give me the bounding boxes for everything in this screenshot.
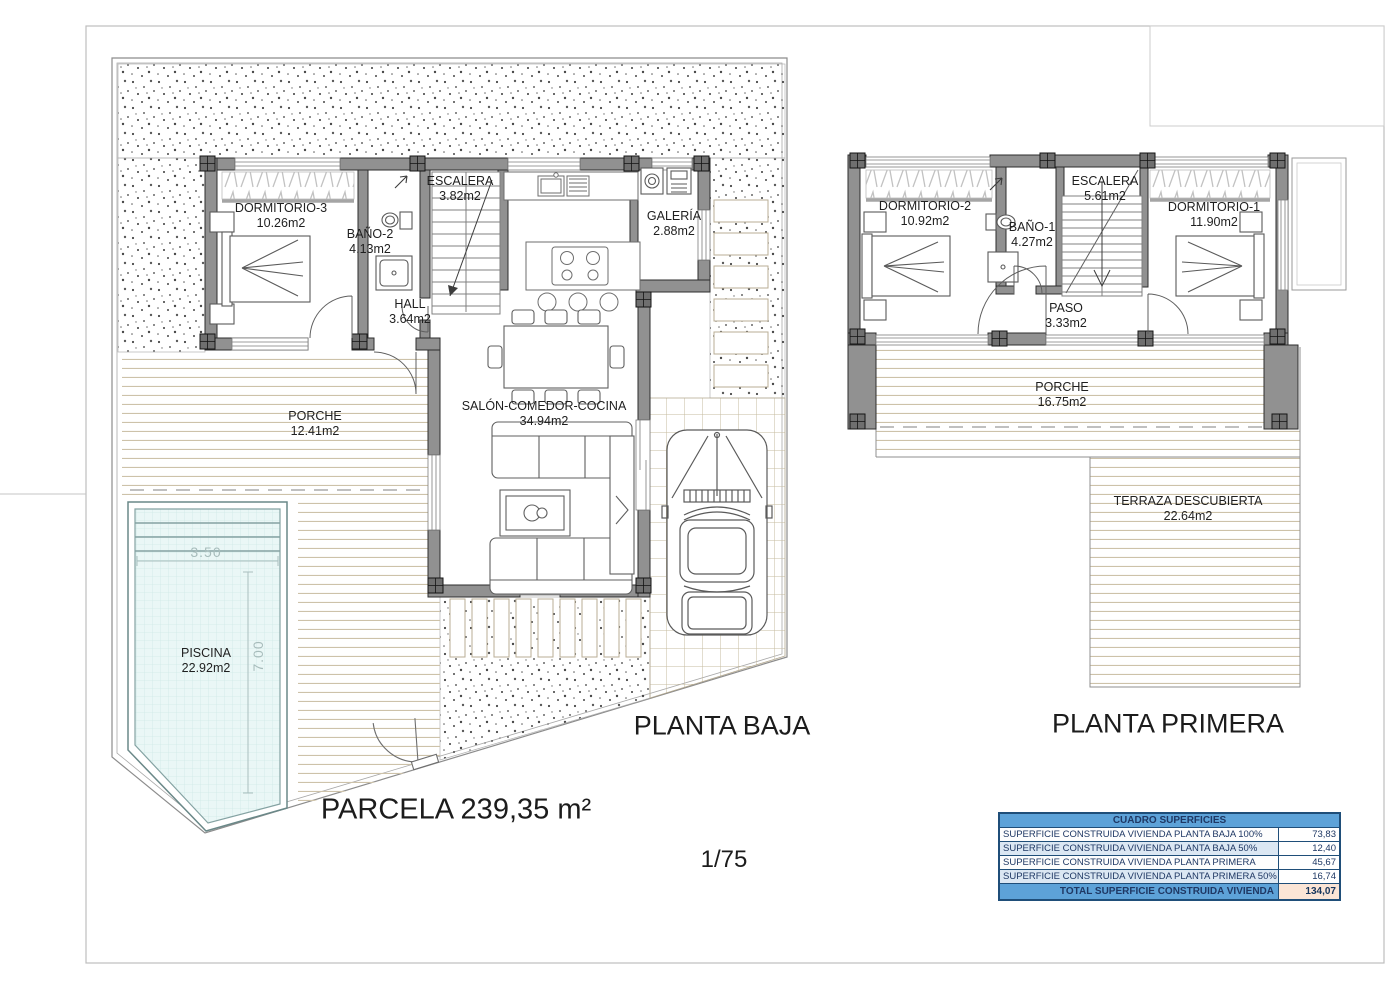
- room-area: 3.64m2: [389, 312, 431, 327]
- row-label: SUPERFICIE CONSTRUIDA VIVIENDA PLANTA PR…: [1000, 856, 1278, 869]
- room-label-salon-comedor-cocina: SALÓN-COMEDOR-COCINA 34.94m2: [462, 399, 627, 430]
- room-area: 4.27m2: [1009, 235, 1056, 250]
- row-label: SUPERFICIE CONSTRUIDA VIVIENDA PLANTA BA…: [1000, 842, 1278, 855]
- row-label: SUPERFICIE CONSTRUIDA VIVIENDA PLANTA BA…: [1000, 828, 1278, 841]
- room-label-bano-1: BAÑO-1 4.27m2: [1009, 220, 1056, 251]
- table-row: SUPERFICIE CONSTRUIDA VIVIENDA PLANTA BA…: [1000, 842, 1339, 856]
- room-area: 22.92m2: [181, 661, 231, 676]
- room-label-dormitorio-3: DORMITORIO-3 10.26m2: [235, 201, 327, 232]
- row-label: SUPERFICIE CONSTRUIDA VIVIENDA PLANTA PR…: [1000, 870, 1278, 883]
- room-label-escalera-primera: ESCALERA 5.61m2: [1072, 174, 1139, 205]
- balcony-ledge: [1292, 158, 1346, 290]
- table-total-row: TOTAL SUPERFICIE CONSTRUIDA VIVIENDA 134…: [1000, 884, 1339, 899]
- room-label-hall: HALL 3.64m2: [389, 297, 431, 328]
- total-value: 134,07: [1278, 884, 1339, 899]
- room-name: HALL: [389, 297, 431, 312]
- title-planta-baja: PLANTA BAJA: [634, 711, 811, 742]
- room-label-paso: PASO 3.33m2: [1045, 301, 1087, 332]
- room-label-porche-baja: PORCHE 12.41m2: [288, 409, 341, 440]
- room-name: ESCALERA: [427, 174, 494, 189]
- surfaces-table-header: CUADRO SUPERFICIES: [1000, 814, 1339, 828]
- room-area: 3.33m2: [1045, 316, 1087, 331]
- room-name: GALERÍA: [647, 209, 701, 224]
- row-value: 12,40: [1278, 842, 1339, 855]
- room-area: 16.75m2: [1035, 395, 1088, 410]
- room-area: 3.82m2: [427, 189, 494, 204]
- room-label-terraza-descubierta: TERRAZA DESCUBIERTA 22.64m2: [1114, 494, 1263, 525]
- row-value: 45,67: [1278, 856, 1339, 869]
- wardrobe-dormitorio-3: [222, 172, 354, 201]
- room-area: 10.92m2: [879, 214, 971, 229]
- plan-sheet: DORMITORIO-3 10.26m2 BAÑO-2 4.13m2 ESCAL…: [0, 0, 1400, 991]
- pool-width-dimension: 3.50: [190, 544, 221, 560]
- room-area: 4.13m2: [347, 242, 394, 257]
- scale-label: 1/75: [701, 846, 748, 874]
- car-top-view: [662, 430, 772, 635]
- surfaces-table: CUADRO SUPERFICIES SUPERFICIE CONSTRUIDA…: [998, 812, 1341, 901]
- table-row: SUPERFICIE CONSTRUIDA VIVIENDA PLANTA BA…: [1000, 828, 1339, 842]
- room-name: BAÑO-1: [1009, 220, 1056, 235]
- living-room-furniture: [490, 422, 634, 594]
- room-label-escalera-baja: ESCALERA 3.82m2: [427, 174, 494, 205]
- room-label-galeria: GALERÍA 2.88m2: [647, 209, 701, 240]
- room-name: BAÑO-2: [347, 227, 394, 242]
- room-name: PORCHE: [288, 409, 341, 424]
- row-value: 16,74: [1278, 870, 1339, 883]
- room-label-dormitorio-2: DORMITORIO-2 10.92m2: [879, 199, 971, 230]
- room-name: ESCALERA: [1072, 174, 1139, 189]
- room-area: 34.94m2: [462, 414, 627, 429]
- room-label-porche-primera: PORCHE 16.75m2: [1035, 380, 1088, 411]
- room-name: TERRAZA DESCUBIERTA: [1114, 494, 1263, 509]
- room-name: PISCINA: [181, 646, 231, 661]
- room-name: PASO: [1045, 301, 1087, 316]
- row-value: 73,83: [1278, 828, 1339, 841]
- parcel-area-label: PARCELA 239,35 m²: [321, 794, 591, 827]
- room-area: 22.64m2: [1114, 509, 1263, 524]
- room-label-piscina: PISCINA 22.92m2: [181, 646, 231, 677]
- room-area: 10.26m2: [235, 216, 327, 231]
- room-name: SALÓN-COMEDOR-COCINA: [462, 399, 627, 414]
- room-name: DORMITORIO-3: [235, 201, 327, 216]
- room-label-bano-2: BAÑO-2 4.13m2: [347, 227, 394, 258]
- room-name: DORMITORIO-1: [1168, 200, 1260, 215]
- room-label-dormitorio-1: DORMITORIO-1 11.90m2: [1168, 200, 1260, 231]
- room-area: 5.61m2: [1072, 189, 1139, 204]
- room-name: DORMITORIO-2: [879, 199, 971, 214]
- room-area: 12.41m2: [288, 424, 341, 439]
- galeria-appliances: [641, 168, 691, 194]
- table-row: SUPERFICIE CONSTRUIDA VIVIENDA PLANTA PR…: [1000, 870, 1339, 884]
- room-area: 11.90m2: [1168, 215, 1260, 230]
- dining-table: [488, 310, 624, 404]
- pool-length-dimension: 7.00: [250, 640, 266, 671]
- total-label: TOTAL SUPERFICIE CONSTRUIDA VIVIENDA: [1000, 884, 1278, 899]
- room-area: 2.88m2: [647, 224, 701, 239]
- room-name: PORCHE: [1035, 380, 1088, 395]
- kitchen: [504, 172, 640, 311]
- table-row: SUPERFICIE CONSTRUIDA VIVIENDA PLANTA PR…: [1000, 856, 1339, 870]
- title-planta-primera: PLANTA PRIMERA: [1052, 709, 1284, 740]
